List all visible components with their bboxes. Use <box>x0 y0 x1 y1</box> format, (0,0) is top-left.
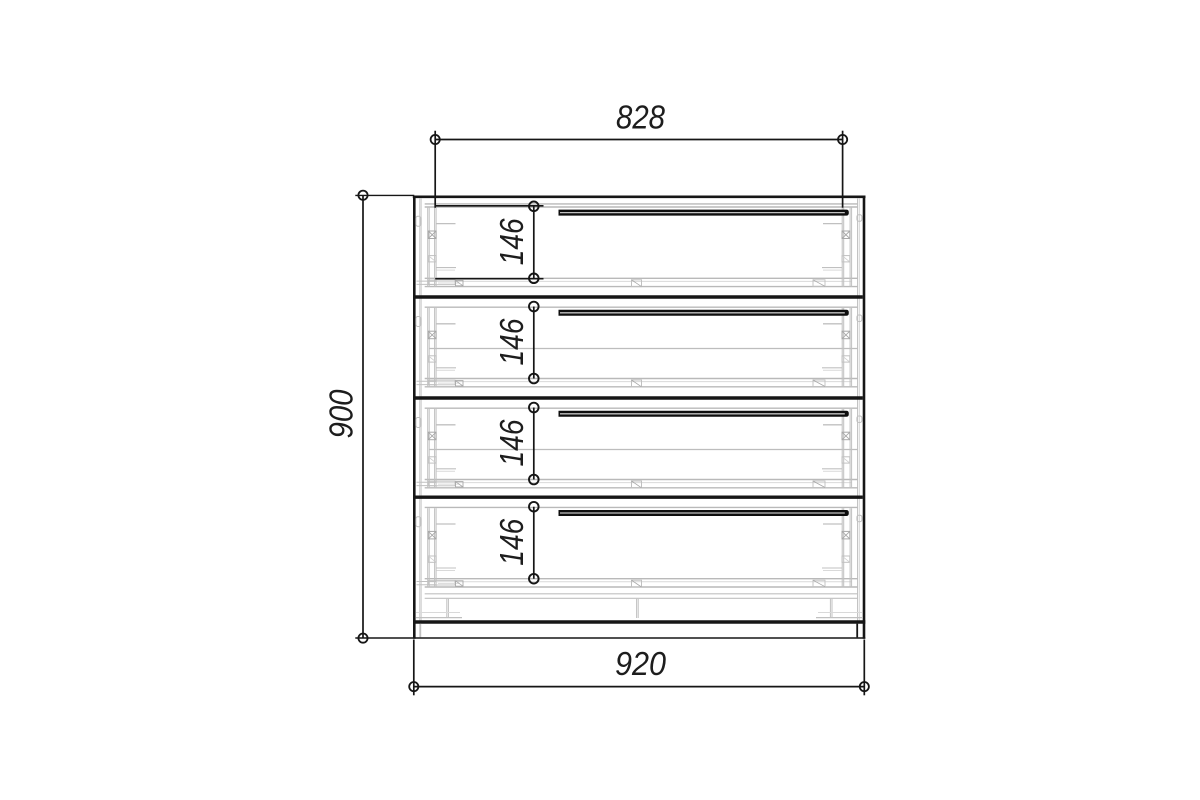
svg-text:146: 146 <box>493 419 530 467</box>
svg-text:920: 920 <box>615 645 667 682</box>
svg-text:900: 900 <box>322 389 359 439</box>
svg-text:146: 146 <box>493 518 530 566</box>
svg-text:828: 828 <box>616 99 666 136</box>
svg-text:146: 146 <box>493 318 530 366</box>
svg-text:146: 146 <box>493 218 530 266</box>
